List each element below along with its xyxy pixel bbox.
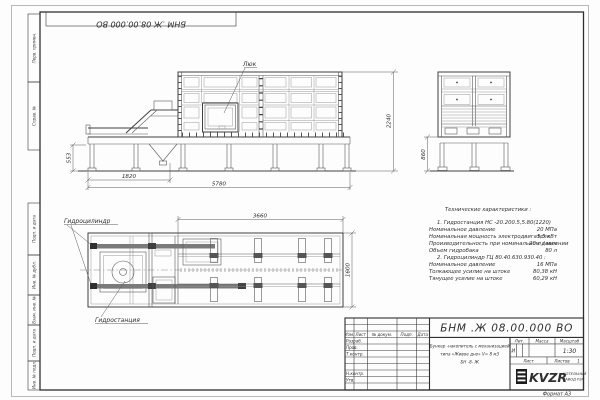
tech-specs: Технические характеристики : 1. Гидроста… <box>429 207 569 282</box>
sheets-label: Листов <box>553 358 570 363</box>
svg-text:1600: 1600 <box>346 262 352 277</box>
dim-1600: 1600 <box>343 231 356 310</box>
scale-header: Масштаб <box>560 338 580 343</box>
front-hatch <box>203 103 239 132</box>
spec-line: 2. Гидроцилиндр ГЦ 80.40.630.930.40 : <box>437 255 546 261</box>
title-block: Изм. Лист № докум. Подп. Дата Разраб. Пр… <box>345 318 587 390</box>
spec-value: 80,38 кН <box>533 269 557 275</box>
spec-line: 1. Гидростанция НС -20.200.5,5.80(1220) <box>437 220 551 226</box>
graph-perv-primen: Перв. примен. <box>32 33 37 64</box>
plan-view: Гидроцилиндр Гидростанция 3660 1600 <box>64 214 356 325</box>
spec-line: Тянущее усилие на штоке <box>429 276 503 282</box>
spec-value: 16 МПа <box>537 262 557 268</box>
hatch-label: Люк <box>242 61 257 68</box>
row-prov: Пров. <box>346 345 358 350</box>
spec-value: 20 л / мин <box>529 241 557 247</box>
scale-value: 1:30 <box>563 348 577 355</box>
cylinder-label: Гидроцилиндр <box>64 218 111 225</box>
spec-line: Толкающее усилие на штоке <box>429 269 511 275</box>
svg-text:5780: 5780 <box>212 182 227 188</box>
lit-header: Лит. <box>514 338 524 343</box>
svg-text:3660: 3660 <box>253 214 268 220</box>
part-name-line3: БН -8- Ж <box>460 360 479 365</box>
graph-podp-data-1: Подп. и дата <box>32 215 37 243</box>
row-razrab: Разраб. <box>346 339 362 344</box>
spec-value: 80 л <box>545 248 557 254</box>
mass-header: Масса <box>535 338 549 343</box>
svg-text:553: 553 <box>67 152 73 163</box>
dim-1820: 1820 <box>86 163 173 190</box>
col-podp: Подп. <box>400 332 412 337</box>
graph-inv-podl: Инв. № подл. <box>32 361 37 389</box>
spec-value: 5,5 кВт <box>537 234 558 240</box>
dim-860: 860 <box>421 135 440 174</box>
svg-text:860: 860 <box>421 149 427 160</box>
station-label: Гидростанция <box>95 317 140 324</box>
row-utv: Утв. <box>346 378 355 383</box>
spec-value: 60,29 кН <box>533 276 557 282</box>
drawing-sheet: Перв. примен. Справ. № Подп. и дата Инв.… <box>0 0 600 400</box>
dim-2240: 2240 <box>342 70 398 174</box>
front-view: Люк 553 1820 5780 <box>67 61 399 190</box>
kvzr-logo-sub2: ЗАВОД РЭП <box>563 378 585 382</box>
front-base-legs <box>88 144 351 171</box>
part-name-line1: Бункер -накопитель с механизацией <box>430 344 510 349</box>
side-view: 860 <box>421 72 514 174</box>
spec-line: Объем гидробака <box>429 248 479 254</box>
graph-podp-data-2: Подп. и дата <box>32 329 37 357</box>
spec-line: Номинальное давление <box>429 262 496 268</box>
col-list: Лист <box>355 332 367 337</box>
graph-vzam-inv: Взам. инв. № <box>32 295 37 324</box>
svg-text:2240: 2240 <box>387 113 393 128</box>
lit-value: И <box>511 349 515 355</box>
format-note: Формат А3 <box>543 392 571 398</box>
sheet-label: Лист <box>522 358 534 363</box>
tech-specs-title: Технические характеристики : <box>445 207 532 213</box>
spec-line: Номинальное давление <box>429 227 496 233</box>
title-block-designation: БНМ .Ж 08.00.000 ВО <box>440 323 573 335</box>
spec-value: 20 МПа <box>537 227 557 233</box>
kvzr-logo-sub1: КОТЕЛЬНЫЙ <box>563 371 587 376</box>
sheets-value: 1 <box>577 358 580 363</box>
row-nkontr: Н.контр. <box>346 371 364 376</box>
top-stamp-designation: БНМ .Ж 08.00.000 ВО <box>96 20 186 29</box>
col-data: Дата <box>416 332 428 337</box>
front-conveyor <box>86 101 178 134</box>
row-tkontr: Т.контр. <box>346 352 364 357</box>
col-dokum: № докум. <box>371 332 392 337</box>
svg-text:1820: 1820 <box>122 174 137 180</box>
kvzr-logo-text: KVZR <box>529 370 567 385</box>
part-name-line2: типа «Живое дно» V= 8 м3 <box>440 352 499 357</box>
graph-sprav-no: Справ. № <box>32 105 37 126</box>
dim-553: 553 <box>67 143 87 174</box>
spec-line: Номинальная мощность электродвигателя <box>429 234 551 240</box>
col-izm: Изм. <box>345 332 355 337</box>
graph-inv-dubl: Инв. № дубл. <box>32 261 37 289</box>
kvzr-logo: KVZR КОТЕЛЬНЫЙ ЗАВОД РЭП <box>516 369 587 385</box>
front-wall <box>178 72 346 137</box>
